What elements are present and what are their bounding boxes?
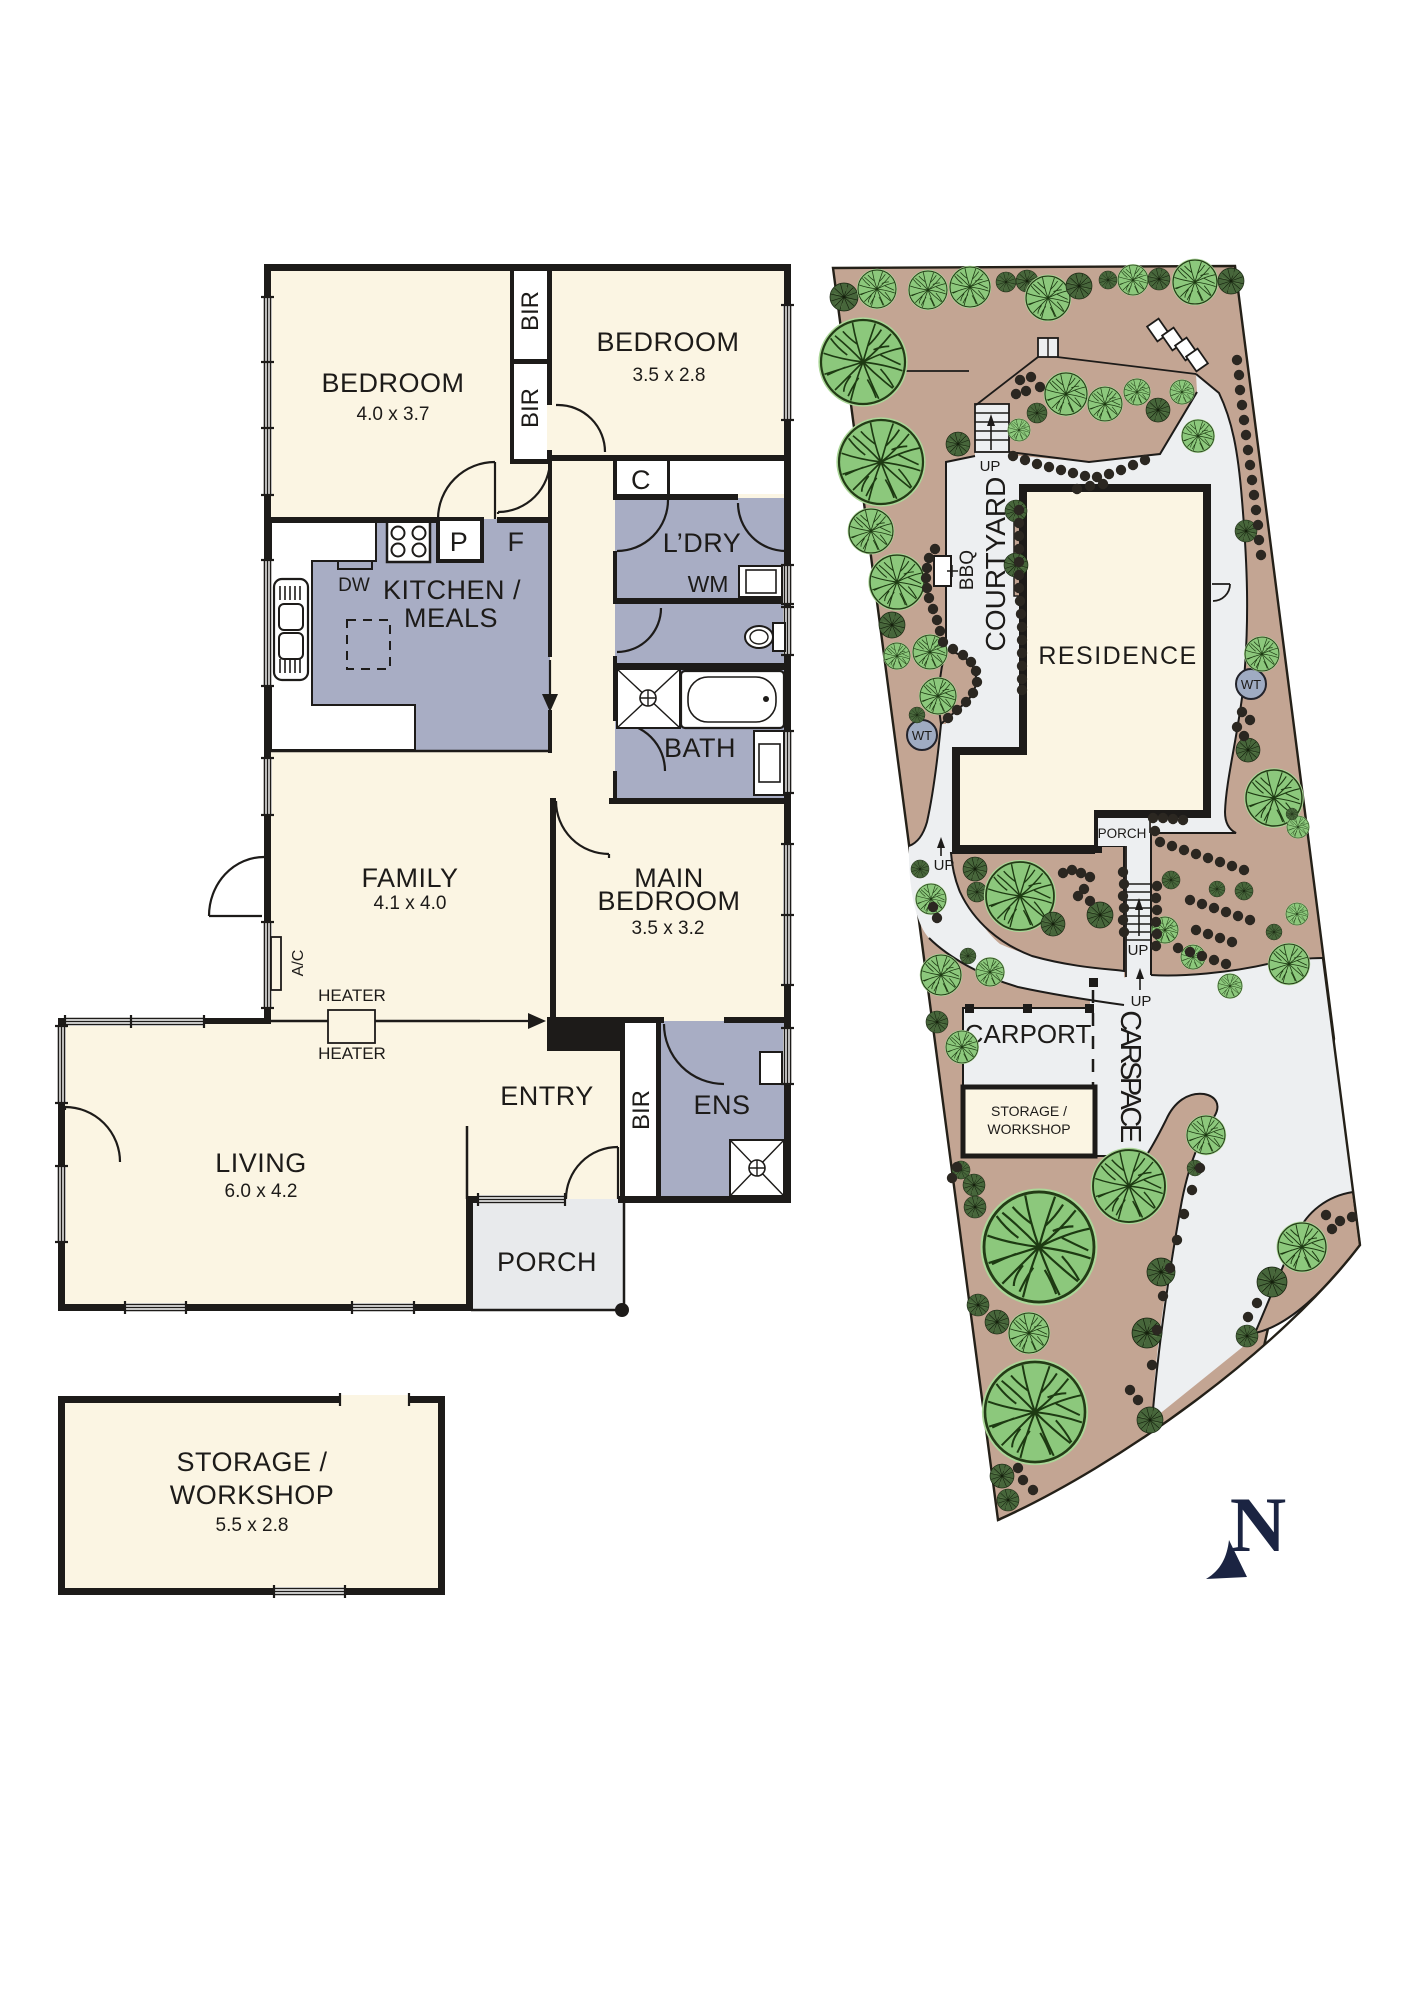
svg-text:KITCHEN /: KITCHEN / <box>383 575 521 605</box>
svg-text:N: N <box>1230 1481 1286 1568</box>
svg-text:UP: UP <box>980 458 1001 475</box>
svg-text:PORCH: PORCH <box>1098 826 1147 841</box>
svg-text:F: F <box>508 527 525 557</box>
svg-text:PORCH: PORCH <box>497 1247 597 1277</box>
svg-text:4.1 x 4.0: 4.1 x 4.0 <box>374 893 447 914</box>
svg-text:P: P <box>450 527 469 557</box>
svg-text:DW: DW <box>338 575 370 596</box>
svg-text:HEATER: HEATER <box>318 1044 386 1063</box>
svg-text:WT: WT <box>912 728 932 743</box>
svg-text:L’DRY: L’DRY <box>663 528 742 558</box>
svg-text:BIR: BIR <box>517 388 544 428</box>
svg-text:UP: UP <box>1128 942 1149 959</box>
svg-text:UP: UP <box>1131 993 1152 1010</box>
svg-text:3.5 x 2.8: 3.5 x 2.8 <box>633 365 706 386</box>
svg-text:UP: UP <box>934 857 955 874</box>
svg-text:BEDROOM: BEDROOM <box>597 886 740 916</box>
svg-text:BIR: BIR <box>628 1090 655 1130</box>
svg-text:MEALS: MEALS <box>404 603 498 633</box>
svg-text:STORAGE /: STORAGE / <box>991 1103 1067 1119</box>
svg-text:WORKSHOP: WORKSHOP <box>987 1121 1070 1137</box>
svg-text:BEDROOM: BEDROOM <box>596 327 739 357</box>
svg-text:5.5 x 2.8: 5.5 x 2.8 <box>216 1515 289 1536</box>
svg-text:WM: WM <box>688 571 729 597</box>
svg-text:BBQ: BBQ <box>957 550 978 590</box>
svg-text:STORAGE /: STORAGE / <box>176 1447 327 1477</box>
svg-text:6.0 x 4.2: 6.0 x 4.2 <box>225 1181 298 1202</box>
svg-text:CARPORT: CARPORT <box>965 1019 1092 1049</box>
svg-text:3.5 x 3.2: 3.5 x 3.2 <box>632 918 705 939</box>
svg-text:BIR: BIR <box>517 291 544 331</box>
svg-text:FAMILY: FAMILY <box>361 863 458 893</box>
svg-text:ENS: ENS <box>693 1090 750 1120</box>
svg-text:LIVING: LIVING <box>215 1148 307 1178</box>
svg-text:HEATER: HEATER <box>318 986 386 1005</box>
svg-text:WT: WT <box>1241 677 1261 692</box>
svg-text:BEDROOM: BEDROOM <box>321 368 464 398</box>
svg-text:ENTRY: ENTRY <box>500 1081 594 1111</box>
svg-text:4.0 x 3.7: 4.0 x 3.7 <box>357 404 430 425</box>
svg-text:RESIDENCE: RESIDENCE <box>1038 642 1197 670</box>
svg-text:C: C <box>631 465 651 495</box>
svg-text:CARSPACE: CARSPACE <box>1114 1010 1146 1143</box>
svg-text:WORKSHOP: WORKSHOP <box>170 1480 335 1510</box>
svg-text:A/C: A/C <box>290 950 307 977</box>
svg-text:BATH: BATH <box>664 733 736 763</box>
